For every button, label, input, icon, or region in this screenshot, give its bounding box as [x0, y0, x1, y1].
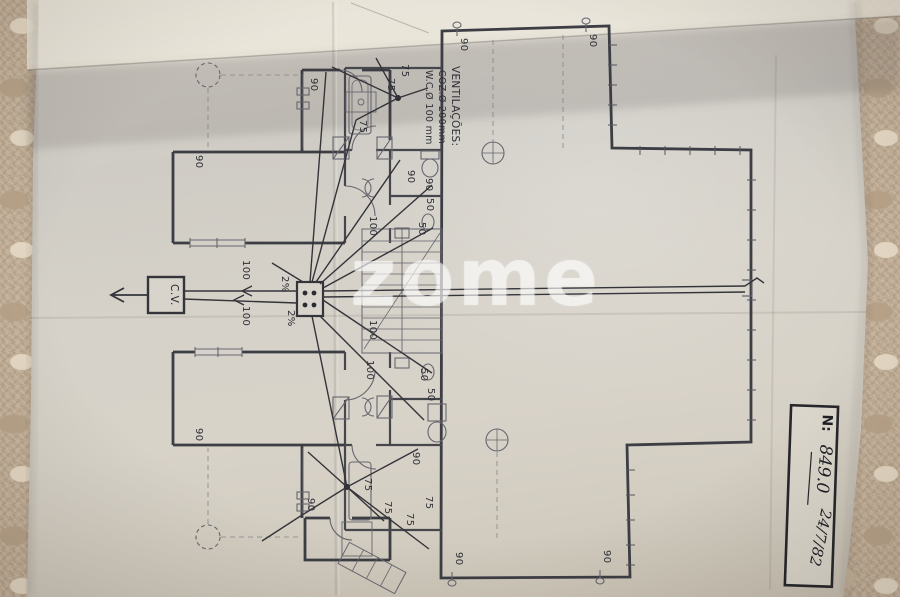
- window-lower-room: [195, 347, 242, 357]
- pipe-diameter-label: 90: [601, 550, 612, 564]
- pipe-diameter-label: 90: [458, 38, 469, 52]
- pipe-diameter-label: 50: [418, 368, 429, 382]
- stamp-number-prefix: N:: [818, 414, 835, 432]
- ventilation-note-title: VENTILAÇÕES:: [449, 66, 462, 146]
- stamp-number: 849.0: [812, 444, 836, 494]
- pipe-diameter-label: 75: [357, 120, 368, 134]
- pipe-diameter-label: 90: [193, 428, 204, 442]
- pipe-diameter-label: 100: [367, 320, 378, 340]
- flow-arrowheads: [234, 286, 252, 305]
- slope-label: 2%: [279, 276, 290, 293]
- toilet-top: [421, 151, 439, 177]
- pipe-diameter-label: 75: [404, 513, 415, 527]
- outfall-arrow[interactable]: [111, 288, 148, 302]
- pipe-diameter-label: 50: [424, 198, 435, 212]
- drain-branches: [272, 72, 433, 487]
- central-junction-box: [297, 282, 323, 316]
- swing-door-symbol-bottom: [362, 398, 374, 416]
- collector-right-end-hook: [745, 278, 764, 286]
- ventilation-note-coz: COZ.Ø 200mm: [436, 70, 447, 144]
- pipe-diameter-label: 90: [308, 78, 319, 92]
- fold-crease-right: [770, 55, 776, 590]
- pipe-diameter-label: 90: [587, 34, 598, 48]
- door-arc-lower-bath: [352, 445, 376, 469]
- pipe-diameter-label: 100: [364, 360, 375, 380]
- collector-right: [323, 286, 745, 297]
- pipe-diameter-label: 90: [193, 155, 204, 169]
- pipe-diameter-label: 90: [453, 552, 464, 566]
- cv-label: C.V.: [168, 284, 180, 306]
- pipe-diameter-label: 100: [240, 306, 251, 326]
- pipe-diameter-label: 75: [385, 78, 396, 92]
- window-upper-room: [190, 238, 245, 248]
- pipe-diameter-label: 75: [423, 496, 434, 510]
- pipe-diameter-label: 90: [405, 170, 416, 184]
- toilet-bottom: [428, 404, 446, 442]
- pipe-diameter-label: 50: [425, 388, 436, 402]
- pipe-diameter-label: 90: [423, 178, 434, 192]
- pipe-diameter-label: 100: [367, 216, 378, 236]
- photo-of-floor-plan: C.V. VENTILAÇÕES: COZ.Ø 200mm W.C.Ø 100 …: [0, 0, 900, 597]
- pipe-diameter-label: 75: [399, 64, 410, 78]
- floor-plan-drawing: C.V. VENTILAÇÕES: COZ.Ø 200mm W.C.Ø 100 …: [0, 0, 900, 597]
- pipe-diameter-label: 90: [410, 452, 421, 466]
- pipe-diameter-label: 75: [382, 501, 393, 515]
- pipe-diameter-label: 100: [240, 260, 251, 280]
- washbasin-bottom: [395, 358, 409, 368]
- ventilation-note-wc: W.C.Ø 100 mm: [423, 70, 434, 145]
- wall-tick-marks: [608, 45, 756, 565]
- pipe-diameter-label: 75: [362, 478, 373, 492]
- slope-label: 2%: [285, 310, 296, 327]
- swing-door-symbol-top: [362, 179, 374, 197]
- pipe-diameter-label: 90: [305, 498, 316, 512]
- registry-stamp: N: 849.0 24/7/82: [785, 405, 839, 587]
- pipe-diameter-label: 50: [416, 222, 427, 236]
- bottom-service-room: [305, 518, 390, 560]
